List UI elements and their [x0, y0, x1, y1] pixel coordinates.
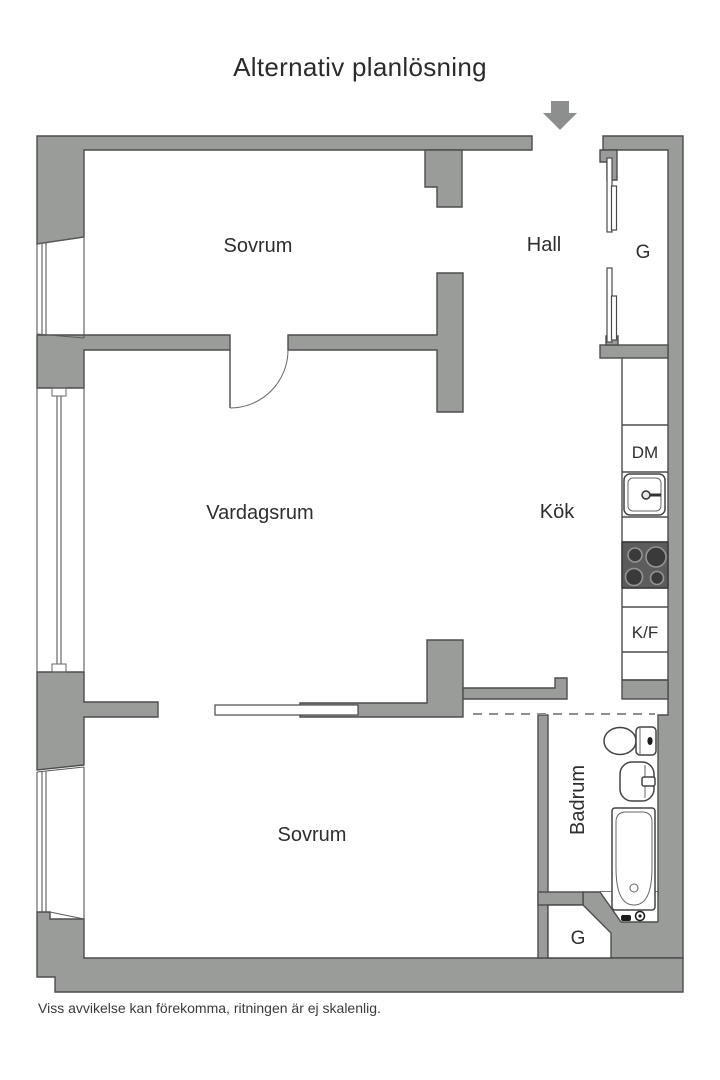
door-bedroom-top	[230, 350, 288, 408]
label-kitchen: Kök	[540, 501, 575, 523]
wall-bathroom-left	[538, 715, 548, 958]
label-closet-top: G	[636, 242, 651, 263]
window-bedroom-top	[37, 237, 84, 338]
disclaimer-text: Viss avvikelse kan förekomma, ritningen …	[38, 1000, 381, 1016]
wall-left-pier2	[37, 672, 158, 770]
bathtub-icon	[612, 808, 655, 921]
stove-icon	[622, 542, 668, 588]
label-bathroom: Badrum	[567, 765, 589, 835]
wall-bathroom-south	[538, 892, 583, 905]
wall-kitchen-south2	[622, 680, 668, 699]
label-bedroom-bottom: Sovrum	[278, 824, 347, 846]
label-bedroom-top: Sovrum	[224, 235, 293, 257]
label-closet-bottom: G	[571, 928, 586, 949]
label-dishwasher: DM	[632, 443, 658, 462]
wall-kitchen-south	[463, 678, 567, 699]
wall-divider-right	[288, 273, 463, 412]
window-bedroom-bottom	[37, 767, 84, 919]
wall-divider-left	[37, 335, 230, 388]
entrance-arrow-icon	[543, 101, 577, 130]
label-living-room: Vardagsrum	[206, 502, 313, 524]
kitchen-sink-icon	[624, 474, 665, 515]
wall-closet-bottom	[600, 345, 668, 358]
label-fridge-freezer: K/F	[632, 623, 658, 642]
walls	[37, 136, 683, 992]
sliding-door-bedroom-bottom	[215, 705, 358, 715]
label-hall: Hall	[527, 234, 561, 256]
window-living-room	[37, 388, 84, 672]
toilet-icon	[604, 727, 656, 755]
floorplan-page: Alternativ planlösning	[0, 0, 720, 1080]
washbasin-icon	[620, 762, 655, 801]
floor-plan: Sovrum Hall G Vardagsrum Kök DM K/F Badr…	[0, 0, 720, 1080]
sliding-doors-closet	[607, 158, 617, 342]
wall-hall-stub	[425, 150, 462, 207]
